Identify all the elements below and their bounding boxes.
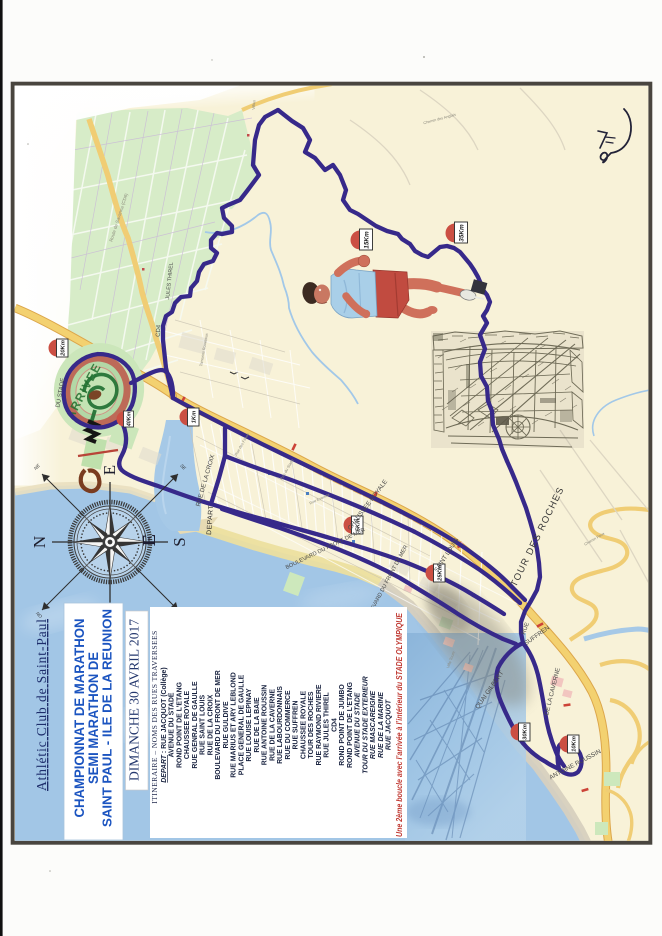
svg-text:40Km: 40Km [127,412,133,428]
svg-text:RUE LABOURDONNAIS: RUE LABOURDONNAIS [277,686,284,764]
svg-text:CHAMPIONNAT DE MARATHON: CHAMPIONNAT DE MARATHON [72,619,87,818]
svg-text:CHAUSSEE ROYALE: CHAUSSEE ROYALE [301,690,308,759]
svg-text:E: E [139,534,159,546]
svg-text:RUE LOUISE LEPINAY: RUE LOUISE LEPINAY [246,688,253,762]
svg-text:PLACE GENERAL DE GAULLE: PLACE GENERAL DE GAULLE [239,674,246,775]
svg-text:AVENUE DU STADE: AVENUE DU STADE [169,692,176,757]
svg-text:CHAUSSEE ROYALE: CHAUSSEE ROYALE [184,690,191,759]
svg-text:RUE DE LA BAIE: RUE DE LA BAIE [254,697,261,753]
svg-text:DEPART : RUE JACQUOT (Collège): DEPART : RUE JACQUOT (Collège) [161,667,168,782]
svg-text:RUE MARIUS ET ARY LEBLOND: RUE MARIUS ET ARY LEBLOND [231,672,238,777]
svg-text:SAINT PAUL - ILE DE LA REUNION: SAINT PAUL - ILE DE LA REUNION [100,609,115,827]
svg-text:CD4: CD4 [156,324,163,337]
svg-text:RUE SAINT LOUIS: RUE SAINT LOUIS [200,695,207,756]
svg-text:N: N [30,536,49,548]
svg-text:Une 2ème boucle avec l’arrivée: Une 2ème boucle avec l’arrivée à l’intér… [395,612,404,837]
svg-text:ITINERAIRE – NOMS DES RUES TRA: ITINERAIRE – NOMS DES RUES TRAVERSEES [150,630,159,803]
svg-text:TOUR DES ROCHES: TOUR DES ROCHES [308,691,315,758]
svg-text:35Km: 35Km [458,224,465,242]
svg-text:S: S [170,537,189,546]
svg-text:1Km: 1Km [192,411,198,424]
svg-text:30Km: 30Km [523,724,529,740]
svg-text:RUE JULES THIREL: RUE JULES THIREL [324,692,331,757]
svg-text:RUE DE LA CROIX: RUE DE LA CROIX [208,694,215,755]
svg-text:RUE DE LA MARINE: RUE DE LA MARINE [378,692,385,758]
svg-text:RUE ANTOINE ROUSSIN: RUE ANTOINE ROUSSIN [262,685,269,765]
svg-text:ROND POINT DE L’ETANG: ROND POINT DE L’ETANG [347,682,354,768]
svg-text:RUE JACQUOT: RUE JACQUOT [386,699,393,750]
svg-text:RUE MASCAREIGNE: RUE MASCAREIGNE [370,691,377,760]
svg-text:15Km: 15Km [363,231,370,249]
svg-text:RUE GULDIVE: RUE GULDIVE [223,701,230,748]
svg-text:20Km: 20Km [61,340,67,357]
svg-text:RUE DE LA CAVERNE: RUE DE LA CAVERNE [270,689,277,761]
svg-text:E: E [100,465,119,475]
svg-text:AVENUE DU STADE: AVENUE DU STADE [355,692,362,758]
svg-text:RUE DU COMMERCE: RUE DU COMMERCE [285,690,292,760]
svg-text:RUE SUFFREN: RUE SUFFREN [293,700,300,749]
svg-text:DIMANCHE 30 AVRIL 2017: DIMANCHE 30 AVRIL 2017 [127,619,142,781]
svg-text:ROND POINT DE JUMBO: ROND POINT DE JUMBO [339,684,346,766]
svg-text:CD4: CD4 [332,718,339,732]
svg-text:RUE RAYMOND RIVIERE: RUE RAYMOND RIVIERE [316,684,323,765]
svg-text:ROND POINT DE L’ETANG: ROND POINT DE L’ETANG [177,682,184,768]
svg-text:TOUR DU STADE EXTERIEUR: TOUR DU STADE EXTERIEUR [363,676,370,773]
svg-text:Athlétic Club de Saint-Paul: Athlétic Club de Saint-Paul [34,619,49,791]
svg-text:RUE GENRAL DE GAULLE: RUE GENRAL DE GAULLE [192,681,199,769]
svg-text:BOULEVARD DU FRONT DE MER: BOULEVARD DU FRONT DE MER [215,670,222,779]
svg-text:10Km: 10Km [572,736,578,752]
